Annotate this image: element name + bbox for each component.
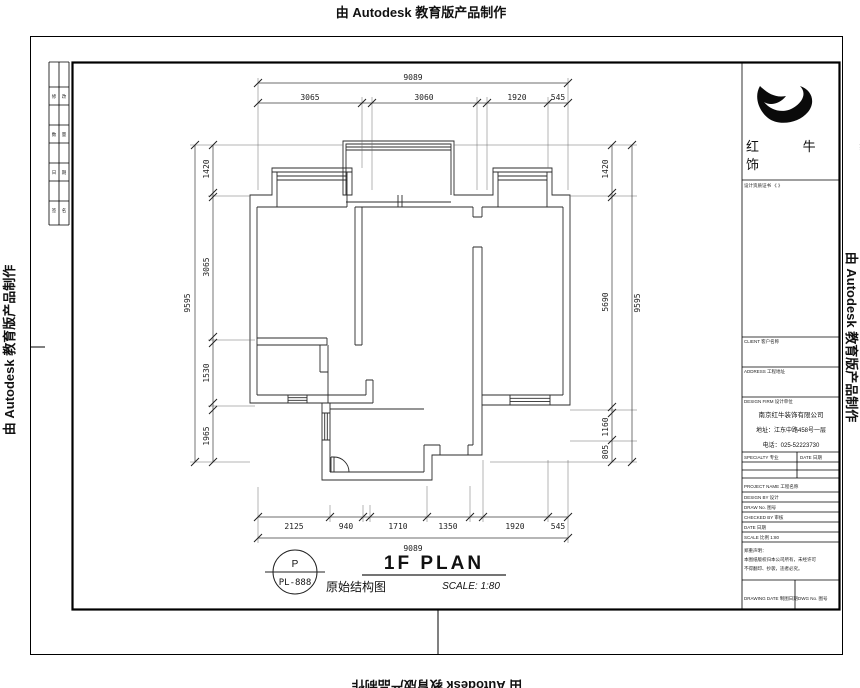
autodesk-watermarks: 由 Autodesk 教育版产品制作 由 Autodesk 教育版产品制作 由 … [2,5,859,688]
plan-scale: SCALE: 1:80 [442,581,500,592]
margin-cell: 数 [52,131,57,138]
watermark-right: 由 Autodesk 教育版产品制作 [844,252,859,422]
margin-cell: 期 [62,170,67,176]
rednew-bull-logo [757,86,812,123]
footer-left-cell: DRAWING DATE 制图日期 [744,595,798,602]
window-small-room [288,395,307,403]
dimension-lines [195,145,213,462]
margin-cell: 改 [62,93,67,100]
dim-right-overall: 9595 [633,293,642,312]
margin-strip-table: 修 改 数 量 日 期 签 名 [49,62,69,225]
dim-bottom-seg: 545 [551,522,566,531]
dim-left-overall: 9595 [183,293,192,312]
tb-row-label: SCALE 比例 1:80 [744,534,780,541]
dim-top-overall: 9089 [403,73,422,82]
notes-line: 本图纸版权归本公司所有，未经许可 [744,556,816,563]
inner-wall-top [257,195,563,395]
wall-left-bedroom [257,207,362,345]
wall-right-bedroom [473,207,482,405]
margin-cell: 日 [52,170,57,176]
col-date: DATE 日期 [800,455,822,461]
bubble-sheet-no: PL-888 [279,578,312,588]
dim-left-seg: 3065 [202,257,211,276]
dim-right-seg: 1420 [601,159,610,178]
dim-bottom-overall: 9089 [403,544,422,553]
wall-corridor [432,405,473,455]
col-specialty: SPECIALTY 专业 [744,454,779,461]
window-kitchen [322,413,330,440]
margin-cell: 量 [62,131,67,138]
dim-top-seg: 545 [551,93,566,102]
watermark-top: 由 Autodesk 教育版产品制作 [336,5,506,20]
bay-window-right [493,172,552,207]
margin-cell: 修 [52,93,57,100]
window-right-room [482,395,563,405]
logo-text-line1: 红 牛 装 [746,139,860,154]
footer-right-cell: DWG No. 图号 [798,596,828,602]
dim-top-seg: 3060 [414,93,433,102]
watermark-bottom: 由 Autodesk 教育版产品制作 [352,678,522,688]
margin-strip-grid [49,62,69,225]
company-name: 南京红牛装饰有限公司 [759,410,824,419]
dim-bottom-seg: 2125 [284,522,303,531]
dimension-lines [612,145,632,462]
dimension-chain-bottom: 2125 940 1710 1350 1920 545 9089 [254,460,572,553]
watermark-left: 由 Autodesk 教育版产品制作 [2,265,17,435]
plan-title-group: P PL-888 1F PLAN 原始结构图 SCALE: 1:80 [265,550,506,594]
plan-title-en: 1F PLAN [384,553,484,574]
notes-line: 郑重声明： [744,547,767,554]
company-address: 地址：江东中路458号一层 [756,426,826,434]
dim-top-seg: 3065 [300,93,319,102]
company-phone: 电话：025-52223730 [763,441,820,449]
tb-row-label: DRAW No. 图号 [744,505,777,511]
tb-row-label: PROJECT NAME 工程名称 [744,483,799,490]
floor-plan [250,141,570,480]
notes-line: 不得翻印、抄袭，违者必究。 [744,565,803,572]
margin-cell: 签 [52,207,57,213]
dimension-chain-left: 9595 1420 3065 1530 1965 [183,141,343,466]
dim-left-seg: 1965 [202,426,211,445]
wall-hall-bottom [257,380,373,403]
firm-row: DESIGN FIRM 设计单位 [744,398,793,405]
drawing-sheet: 由 Autodesk 教育版产品制作 由 Autodesk 教育版产品制作 由 … [0,0,860,688]
dim-top-seg: 1920 [507,93,526,102]
dim-right-seg: 1160 [601,417,610,436]
margin-cell: 名 [62,207,67,214]
dim-right-seg: 5690 [601,292,610,311]
dim-bottom-seg: 1350 [438,522,457,531]
dim-bottom-seg: 1710 [388,522,407,531]
logo-text-line2: 饰 [746,157,759,172]
dim-right-seg: 805 [601,445,610,460]
dim-left-seg: 1420 [202,159,211,178]
outer-wall-outline [250,141,570,480]
bubble-letter: P [292,559,299,570]
bay-window-left [272,172,352,207]
cert-row: 设计资质证书 《 》 [744,182,783,189]
dim-bottom-seg: 940 [339,522,354,531]
wall-small-room [320,345,328,403]
plan-title-cn: 原始结构图 [326,579,386,594]
door-kitchen [331,457,349,472]
dim-left-seg: 1530 [202,363,211,382]
dim-bottom-seg: 1920 [505,522,524,531]
tb-row-label: DATE 日期 [744,525,766,531]
client-row: CLIENT 客户名称 [744,338,780,345]
cad-plot: 由 Autodesk 教育版产品制作 由 Autodesk 教育版产品制作 由 … [0,0,860,688]
tb-row-label: DESIGN BY 设计 [744,494,779,501]
address-row: ADDRESS 工程地址 [744,368,786,375]
tb-row-label: CHECKED BY 审核 [744,514,784,521]
